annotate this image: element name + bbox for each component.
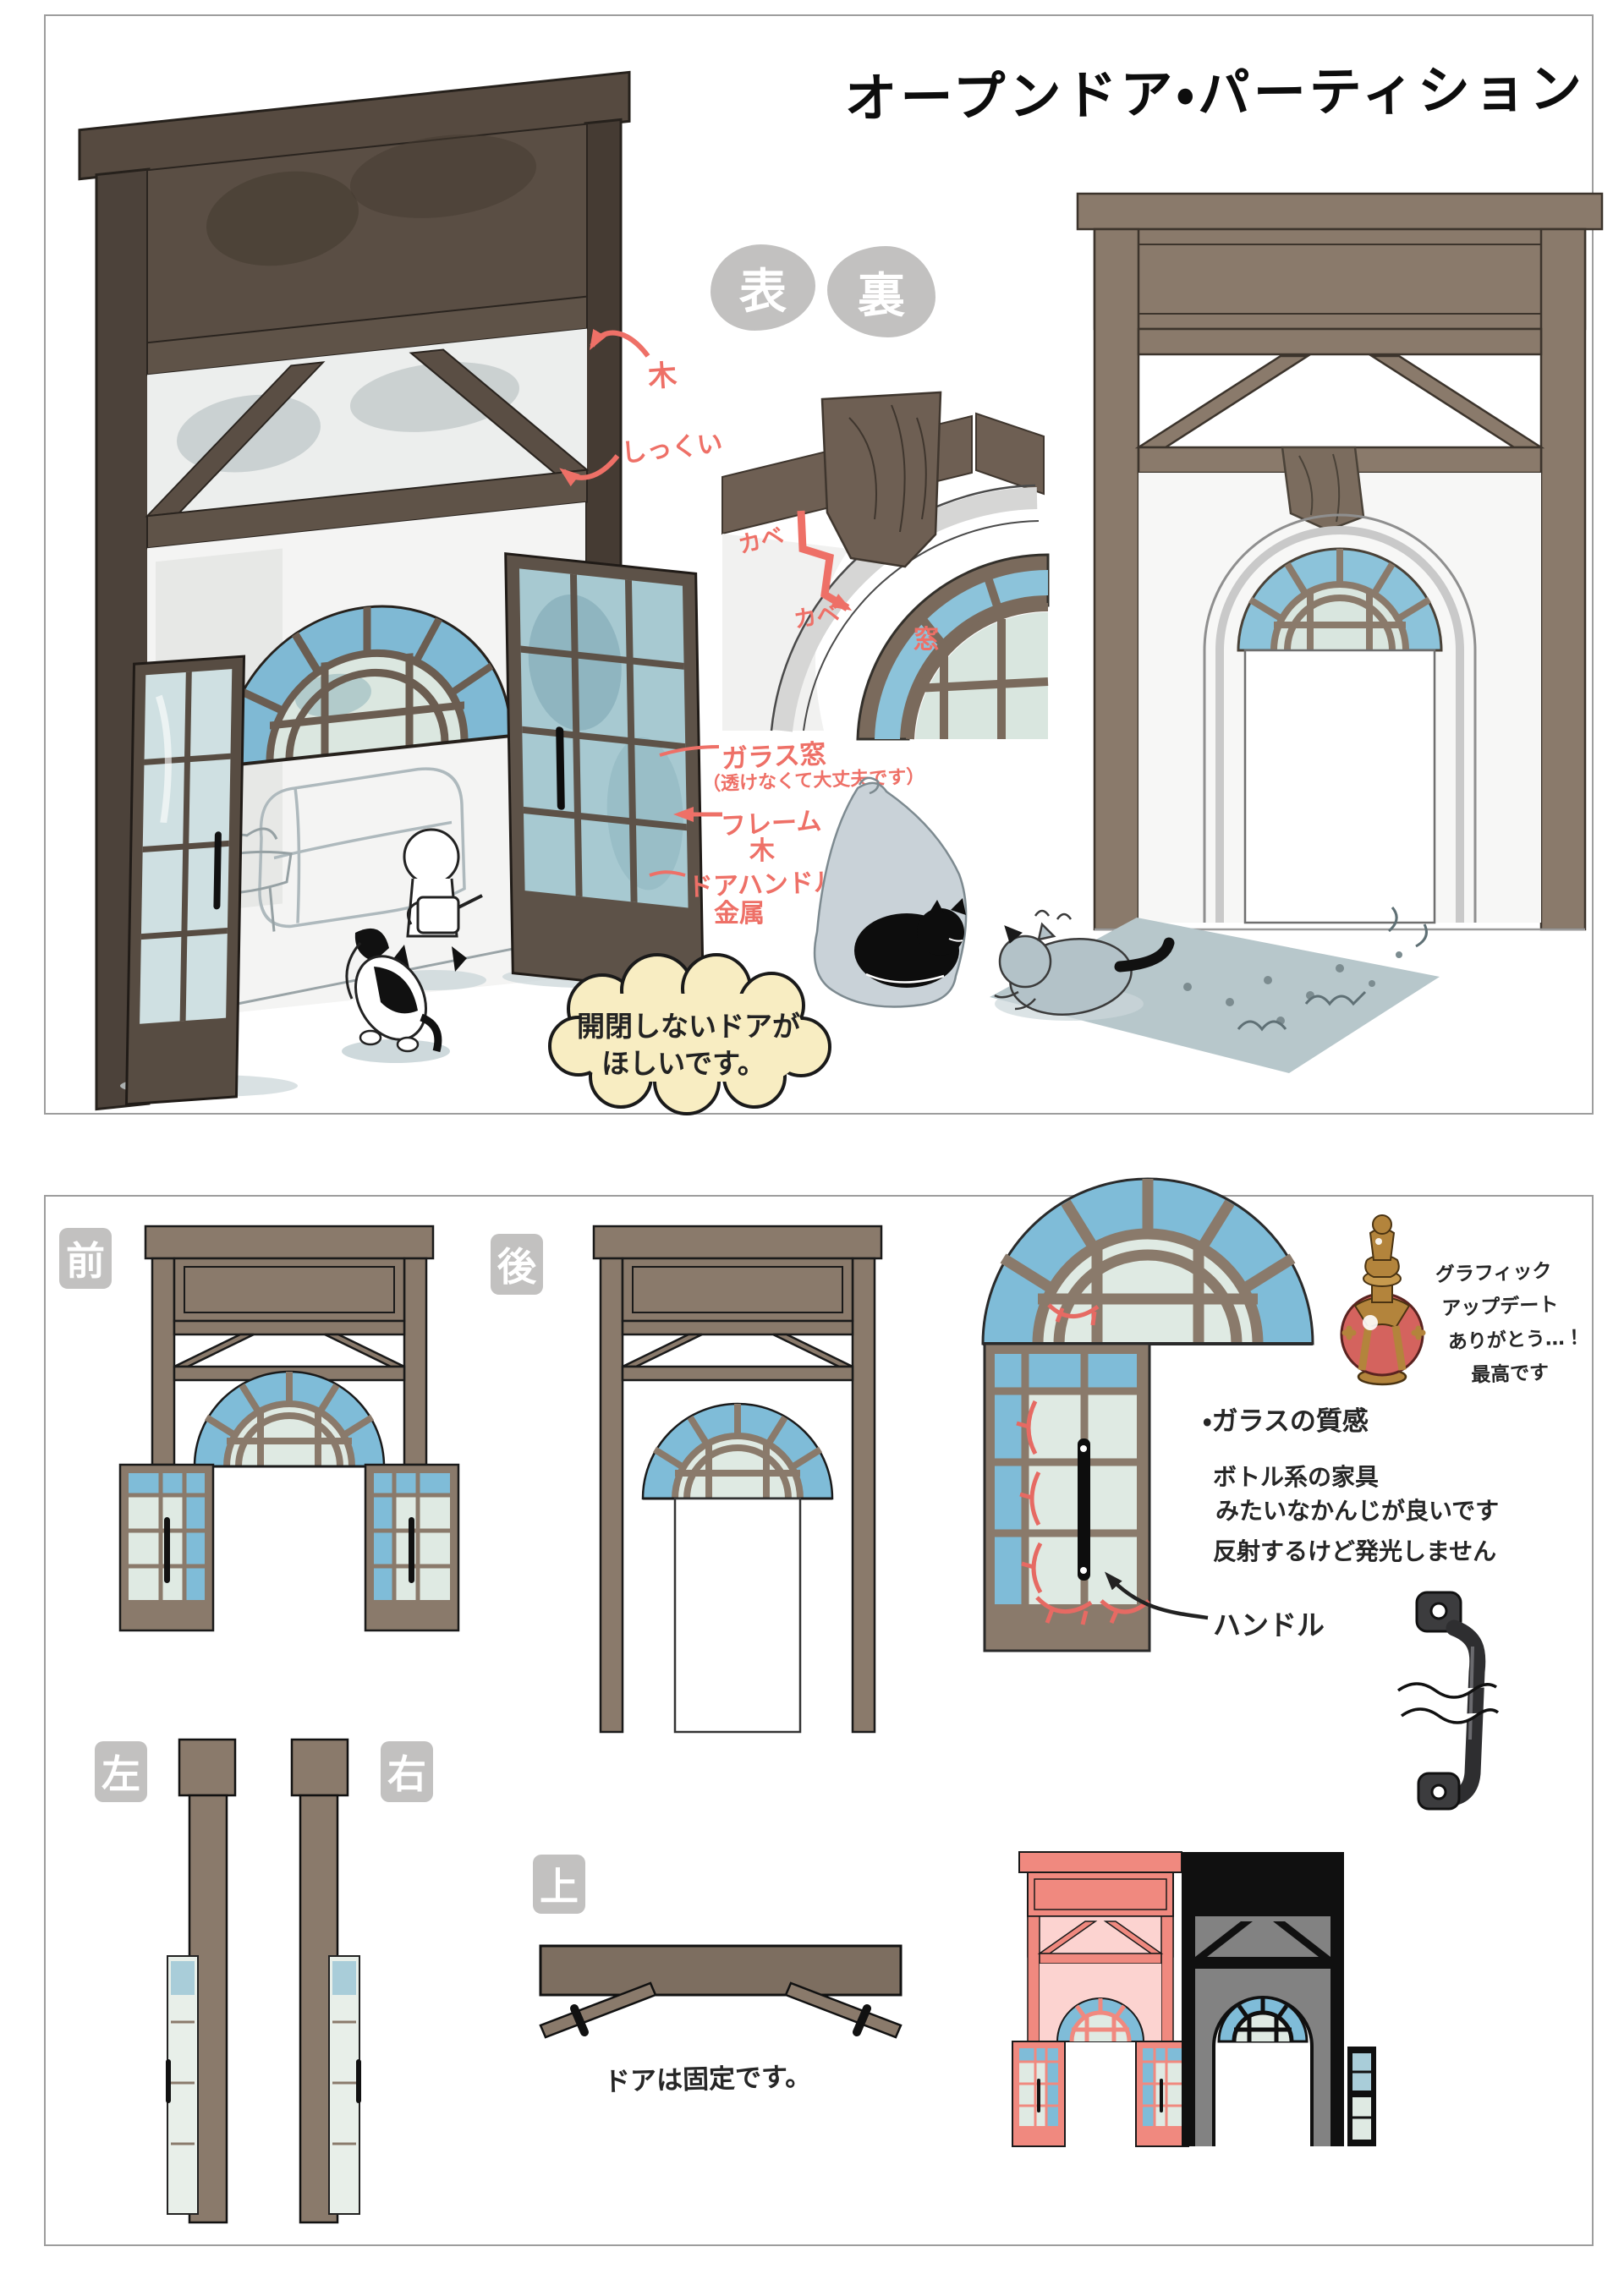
glass-note-line3: 反射するけど発光しません xyxy=(1213,1533,1496,1567)
speech-bubble-line2: ほしいです。 xyxy=(601,1047,765,1080)
page-title: オープンドア・パーティション xyxy=(713,46,1585,134)
thanks-note-line3: ありがとう…！ xyxy=(1447,1321,1584,1355)
orientation-label-front-text: 表 xyxy=(739,254,787,322)
side-view-left xyxy=(156,1738,266,2224)
view-label-right: 右 xyxy=(381,1741,433,1802)
fixed-door-note: ドアは固定です。 xyxy=(603,2055,811,2098)
glass-note-heading: ・ガラスの質感 xyxy=(1203,1400,1369,1438)
side-view-right xyxy=(261,1738,371,2224)
annotation-handle-material: 金属 xyxy=(714,892,765,929)
black-white-cat xyxy=(330,918,457,1070)
black-variant xyxy=(1182,1852,1376,2146)
speech-bubble: 開閉しないドアが ほしいです。 xyxy=(543,958,834,1110)
thanks-note-line2: アップデート xyxy=(1441,1287,1583,1321)
sketch-arch-window xyxy=(858,555,1048,739)
back-arch-opening xyxy=(1204,515,1475,923)
orientation-label-back: 裏 xyxy=(827,246,935,337)
potion-bottle xyxy=(1336,1208,1431,1392)
pink-variant-doors xyxy=(1012,2041,1188,2146)
front-door-left xyxy=(120,1465,213,1630)
side-door-leaf xyxy=(166,1956,198,2214)
open-door-left xyxy=(126,656,244,1104)
view-label-left-text: 左 xyxy=(101,1744,140,1800)
annotation-frame-material: 木 xyxy=(749,830,775,867)
color-variant-drawings xyxy=(1012,1844,1378,2211)
view-label-top: 上 xyxy=(533,1855,585,1914)
view-label-left: 左 xyxy=(95,1741,147,1802)
top-view-drawing xyxy=(530,1931,911,2070)
handle-callout-label: ハンドル xyxy=(1213,1603,1325,1643)
view-label-top-text: 上 xyxy=(540,1856,579,1912)
back-arch-window xyxy=(643,1404,832,1499)
closeup-arch xyxy=(983,1179,1313,1344)
front-orthographic-view xyxy=(86,1219,492,1744)
concept-sheet-page: { "title": "オープンドア・パーティション", "top_panel"… xyxy=(0,0,1624,2296)
closeup-door-handle xyxy=(1078,1438,1090,1581)
door-handle-detail xyxy=(1395,1587,1501,1811)
pink-variant xyxy=(1012,1852,1188,2146)
door-handle xyxy=(213,831,222,910)
glass-note-line1: ボトル系の家具 xyxy=(1213,1459,1379,1493)
back-doorway-opening xyxy=(675,1499,800,1732)
view-label-right-text: 右 xyxy=(387,1744,426,1800)
open-door-right xyxy=(506,554,704,994)
thanks-note-line4: 最高です xyxy=(1471,1355,1586,1388)
glass-note-line2: みたいなかんじが良いです xyxy=(1215,1493,1499,1526)
partition-back-view-drawing xyxy=(1069,177,1610,972)
wall-cross-section-sketch xyxy=(722,367,1044,739)
front-arch-window xyxy=(195,1372,384,1466)
perspective-concept-panel: オープンドア・パーティション xyxy=(44,14,1594,1115)
rug-and-gray-cat xyxy=(976,902,1450,1097)
door-handle xyxy=(556,726,565,810)
front-door-right xyxy=(365,1465,458,1630)
orientation-label-back-text: 裏 xyxy=(858,258,905,326)
black-variant-side-door xyxy=(1347,2047,1376,2146)
back-orthographic-view xyxy=(535,1219,941,1744)
side-door-leaf xyxy=(329,1956,361,2214)
closeup-door xyxy=(985,1344,1149,1651)
view-label-back-text: 後 xyxy=(497,1236,536,1292)
thanks-note: グラフィック アップデート ありがとう…！ 最高です xyxy=(1435,1253,1585,1389)
annotation-wood: 木 xyxy=(646,352,678,395)
orthographic-views-panel: 前 xyxy=(44,1195,1594,2246)
speech-bubble-line1: 開閉しないドアが xyxy=(577,1010,800,1043)
thanks-note-line1: グラフィック xyxy=(1435,1253,1582,1287)
annotation-window: 窓 xyxy=(913,618,939,655)
orientation-label-front: 表 xyxy=(710,244,815,331)
